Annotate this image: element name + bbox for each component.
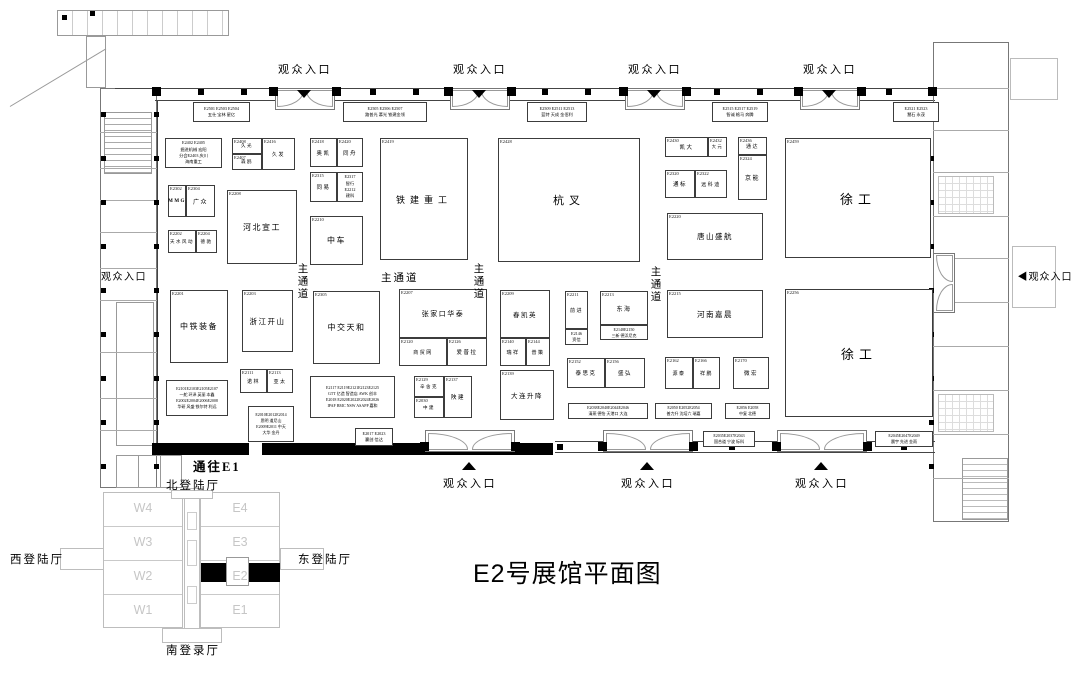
minimap-hall-E4: E4 [200,501,280,515]
minimap-hall-W4: W4 [103,501,183,515]
column-marker [929,464,934,469]
booth-name: 盛弘 [606,359,644,387]
entrance-door [603,430,693,452]
right-corridor-divider [933,88,1009,89]
entrance-label: 观众入口 [265,61,345,77]
column-marker [269,87,278,96]
column-marker [928,87,937,96]
booth-cluster: E2317智行E2212建科 [337,172,363,202]
column-marker [101,244,106,249]
booth-E2304: E2304广众 [186,185,215,217]
right-restroom-block [938,176,994,214]
booth-E2156: E2156盛弘 [605,358,645,388]
entrance-arrow-icon [822,90,836,98]
column-marker [101,332,106,337]
column-marker [154,156,159,161]
booth-name: 京能 [739,156,766,199]
booth-name: 浙江开山 [243,291,292,351]
right-corridor-divider [933,434,1009,435]
booth-name: 微宏 [734,358,768,388]
booth-name: 东海 [601,292,647,324]
door-leaf-icon [824,433,864,449]
booth-E2201: E2201中铁装备 [170,290,228,363]
booth-E2419: E2419铁建重工 [380,138,468,260]
booth-lines: E2146资信 [566,330,587,344]
booth-name: 通达 [739,138,766,154]
booth-name: 源泰 [666,358,692,388]
column-marker [863,442,872,451]
left-long-room [116,302,154,446]
booth-name: 商贸网 [400,339,446,365]
booth-lines: E2509 E2511 E2513蓝特 天成 金佰利 [528,103,586,121]
booth-E2305: E2305中交天和 [313,291,380,364]
booth-name: 春凯英 [501,291,549,337]
corridor-bar-gap [249,443,262,455]
booth-cluster: E2045E2047E2049晨宇 先进 金雨 [875,431,933,447]
booth-name: 大元 [709,138,726,156]
booth-E2210: E2210中车 [310,216,363,265]
column-marker [507,87,516,96]
booth-E2162: E2162源泰 [665,357,693,389]
booth-name: 前进 [566,292,587,328]
left-corridor-divider [100,200,157,201]
column-marker [772,442,781,451]
entrance-label: 观众入口 [430,475,510,491]
column-marker [542,89,548,95]
booth-E2215: E2215河南嘉晨 [667,290,763,338]
main-aisle-label: 主通道 [472,263,484,301]
booth-cluster: E2010E2012E2014思明 道尼山E2009E2011 中天大华 金丹 [248,406,294,442]
booth-cluster: E2038E2040E2044E2046清燕 德怡 天港口 大连 [568,403,648,419]
booth-name: 瑞祥 [501,339,525,365]
booth-cluster: E2050 E2052E2054普力升 沈培六 瑞嘉 [655,403,712,419]
booth-name: 诺林 [241,370,266,392]
right-corridor-divider [933,478,1009,479]
booth-E2137: E2137陕建 [444,376,472,418]
column-marker [444,87,453,96]
left-corridor-divider [100,300,157,301]
booth-name: 广众 [187,186,214,216]
booth-name: 徐工 [786,290,932,416]
booth-E2126: E2126爱普拉 [447,338,487,366]
booth-E2166: E2166祥鹏 [693,357,720,389]
minimap-south-hall-label: 南登录厅 [150,642,236,658]
booth-name: 凯大 [666,138,707,156]
booth-E2324: E2324京能 [738,155,767,200]
booth-E2030: E2030中建 [414,397,444,418]
column-marker [413,89,419,95]
column-marker [370,89,376,95]
door-leaf-icon [936,255,952,282]
column-marker [420,442,429,451]
door-leaf-icon [780,433,820,449]
booth-name: 大连升降 [501,371,553,419]
door-leaf-icon [650,433,690,449]
entrance-label: ◀观众入口 [1008,268,1080,283]
entrance-door [425,430,515,452]
column-marker [585,89,591,95]
booth-name: 杭叉 [499,139,639,261]
column-marker [154,332,159,337]
door-leaf-icon [428,433,468,449]
booth-name: 铁建重工 [381,139,467,259]
right-corridor-divider [933,346,1009,347]
booth-name: 远科迪 [696,171,726,197]
booth-E2302: E2302MMG [168,185,186,217]
booth-cluster: E2146资信 [565,329,588,345]
minimap-west-hall-label: 西登陆厅 [10,551,64,567]
column-marker [101,420,106,425]
booth-cluster: E2521 E2523慧石 永茂 [893,102,939,122]
main-aisle-label: 主通道 [381,270,419,285]
left-stairwell [104,112,152,174]
booth-lines: E2010E2012E2014思明 道尼山E2009E2011 中天大华 金丹 [249,407,293,441]
booth-lines: E2038E2040E2044E2046清燕 德怡 天港口 大连 [569,404,647,418]
entrance-label: 观众入口 [782,475,862,491]
booth-cluster: E2402 E2405掘进机械 宏阳分会E2403 庆川海南重工 [165,138,222,168]
entrance-label: 观众入口 [94,268,154,283]
booth-E2407: E2407森鸥 [232,154,262,170]
booth-name: 中铁装备 [171,291,227,362]
booth-E2213: E2213东海 [600,291,648,325]
booth-lines: E2402 E2405掘进机械 宏阳分会E2403 庆川海南重工 [166,139,221,167]
entrance-door [777,430,867,452]
loading-dock-top [57,10,229,36]
minimap-hall-E3: E3 [200,535,280,549]
booth-E2420: E2420同舟 [337,138,363,167]
right-outer-room [1010,58,1058,100]
minimap-east-hall-label: 东登陆厅 [298,551,352,567]
booth-name: 德驰 [197,231,216,252]
column-marker [557,444,563,450]
booth-cluster: E2509 E2511 E2513蓝特 天成 金佰利 [527,102,587,122]
minimap-hall-W3: W3 [103,535,183,549]
hall-left-edge [157,100,158,443]
to-e1-label: 通往E1 [193,456,241,475]
column-marker [619,87,628,96]
booth-E2120: E2120商贸网 [399,338,447,366]
left-corridor-divider [100,352,157,353]
right-corridor-divider [933,390,1009,391]
booth-name: 普策 [527,339,549,365]
left-corridor-divider [100,132,157,133]
right-bottom-stairwell [962,458,1008,520]
booth-lines: E2017 E2023赢创 信达 [356,429,392,445]
column-marker [101,376,106,381]
entrance-arrow-icon [814,462,828,470]
column-marker [689,442,698,451]
booth-cluster: E2148E2150三新 德浜尼克 [600,325,648,340]
booth-E2111: E2111诺林 [240,369,267,393]
booth-lines: E2148E2150三新 德浜尼克 [601,326,647,339]
left-corridor-divider [100,232,157,233]
booth-name: 祥鹏 [694,358,719,388]
booth-lines: E2317智行E2212建科 [338,173,362,201]
minimap-north-hall-label: 北登陆厅 [153,477,233,493]
right-corridor-divider [933,130,1009,131]
column-marker [154,112,159,117]
booth-E2140: E2140瑞祥 [500,338,526,366]
entrance-label: 观众入口 [440,61,520,77]
column-marker [101,112,106,117]
booth-lines: E2521 E2523慧石 永茂 [894,103,938,121]
entrance-arrow-icon [462,462,476,470]
column-marker [154,376,159,381]
entrance-arrow-icon [297,90,311,98]
minimap-hall-E1: E1 [200,603,280,617]
main-aisle-label: 主通道 [296,263,308,301]
booth-E2436: E2436通达 [738,137,767,155]
booth-E2152: E2152泰思克 [567,358,605,388]
booth-name: 泰思克 [568,359,604,387]
booth-cluster: E2117 E2119E2121E2123E2125GTT 亿造 智造店 AWK… [310,376,395,418]
column-marker [152,87,161,96]
entrance-label: 观众入口 [615,61,695,77]
booth-cluster: E2017 E2023赢创 信达 [355,428,393,446]
booth-E2416: E2416久发 [262,138,295,170]
booth-name: 中交天和 [314,292,379,363]
column-marker [332,87,341,96]
booth-E2459: E2459徐工 [785,138,931,258]
column-marker [154,244,159,249]
column-marker [101,156,106,161]
column-marker [101,288,106,293]
bottom-wall-outer [555,452,935,453]
booth-E2418: E2418奥凯 [310,138,337,167]
column-marker [154,464,159,469]
column-marker [598,442,607,451]
door-leaf-icon [472,433,512,449]
booth-E2430: E2430凯大 [665,137,708,157]
booth-cluster: E2515 E2517 E2519智诚 格马 奔腾 [712,102,768,122]
booth-name: 爱普拉 [448,339,486,365]
booth-E2320: E2320通标 [665,170,695,198]
door-leaf-icon [936,284,952,311]
booth-name: 陕建 [445,377,471,417]
booth-name: 奥凯 [311,139,336,166]
column-marker [682,87,691,96]
booth-E2432: E2432大元 [708,137,727,157]
booth-name: 中建 [415,398,443,417]
left-corridor-divider [100,398,157,399]
booth-lines: E2050 E2052E2054普力升 沈培六 瑞嘉 [656,404,711,418]
column-marker [154,200,159,205]
booth-cluster: E2505 E2506 E2507路普光 慕光 铁建金领 [343,102,427,122]
entrance-arrow-icon [647,90,661,98]
column-marker [90,11,95,16]
column-marker [886,89,892,95]
booth-name: 久发 [263,139,294,169]
booth-name: 森鸥 [233,155,261,169]
minimap-hall-W2: W2 [103,569,183,583]
booth-lines: E2035E2037E2043国合道 宁波 标科 [704,432,754,446]
minimap-corridor-room [187,540,197,566]
booth-lines: E2045E2047E2049晨宇 先进 金雨 [876,432,932,446]
entrance-arrow-icon [640,462,654,470]
booth-name: 唐山盛航 [668,214,762,259]
booth-E2220: E2220唐山盛航 [667,213,763,260]
booth-E2203: E2203浙江开山 [242,290,293,352]
booth-lines: E2515 E2517 E2519智诚 格马 奔腾 [713,103,767,121]
left-corridor-divider [100,168,157,169]
booth-E2204: E2204德驰 [196,230,217,253]
column-marker [757,89,763,95]
booth-lines: E2501 E2503 E2504五仕 宝林 星亿 [194,103,249,121]
booth-lines: E2117 E2119E2121E2123E2125GTT 亿造 智造店 AWK… [311,377,394,417]
booth-E2322: E2322远科迪 [695,170,727,198]
booth-name: 同舟 [338,139,362,166]
column-marker [794,87,803,96]
minimap-south-stub [162,628,222,643]
plan-title: E2号展馆平面图 [473,554,662,590]
booth-E2208: E2208河北宣工 [227,190,297,264]
booth-E2202: E2202天水风动 [168,230,196,253]
booth-name: 辛舍克 [415,377,443,396]
main-aisle-label: 主通道 [649,266,661,304]
column-marker [62,15,67,20]
exhibition-hall-e2-floor-plan: 通往E1 北登陆厅 南登录厅 西登陆厅 东登陆厅 E2号展馆平面图 E2501 … [0,0,1080,676]
column-marker [714,89,720,95]
right-corridor-divider [933,172,1009,173]
entrance-label: 观众入口 [608,475,688,491]
booth-name: 通标 [666,171,694,197]
column-marker [241,89,247,95]
booth-name: 久光 [233,139,261,153]
column-marker [154,288,159,293]
column-marker [857,87,866,96]
booth-E2428: E2428杭叉 [498,138,640,262]
booth-E2139: E2139大连升降 [500,370,554,420]
entrance-arrow-icon [472,90,486,98]
booth-name: 河北宣工 [228,191,296,263]
booth-lines: E2505 E2506 E2507路普光 慕光 铁建金领 [344,103,426,121]
booth-E2315: E2315同易 [310,172,337,202]
booth-cluster: E2101E2103E2105E2107一舵 环泽 英丽 本鑫E2002E200… [166,380,228,416]
entrance-label: 观众入口 [790,61,870,77]
column-marker [198,89,204,95]
booth-cluster: E2056 E2058中复 北德 [725,403,770,419]
booth-name: 中车 [311,217,362,264]
booth-cluster: E2501 E2503 E2504五仕 宝林 星亿 [193,102,250,122]
booth-E2170: E2170微宏 [733,357,769,389]
booth-name: 徐工 [786,139,930,257]
booth-lines: E2056 E2058中复 北德 [726,404,769,418]
booth-name: 同易 [311,173,336,201]
booth-E2129: E2129辛舍克 [414,376,444,397]
booth-cluster: E2035E2037E2043国合道 宁波 标科 [703,431,755,447]
right-corridor-divider [933,216,1009,217]
minimap-hall-W1: W1 [103,603,183,617]
column-marker [101,200,106,205]
minimap-corridor-room [187,586,197,604]
left-corridor-divider [100,430,157,431]
booth-E2211: E2211前进 [565,291,588,329]
column-marker [511,442,520,451]
booth-name: MMG [169,186,185,216]
booth-lines: E2101E2103E2105E2107一舵 环泽 英丽 本鑫E2002E200… [167,381,227,415]
booth-E2256: E2256徐工 [785,289,933,417]
minimap-hall-E2: E2 [200,569,280,583]
booth-E2113: E2113亚太 [267,369,293,393]
minimap-west-stub [60,548,104,570]
entrance-door [933,253,955,313]
door-leaf-icon [606,433,646,449]
booth-E2144: E2144普策 [526,338,550,366]
column-marker [929,420,934,425]
minimap-corridor-room [187,512,197,530]
right-restroom-block [938,394,994,432]
booth-name: 天水风动 [169,231,195,252]
dock-connector [86,36,106,88]
column-marker [154,420,159,425]
booth-E2209: E2209春凯英 [500,290,550,338]
column-marker [101,464,106,469]
booth-name: 河南嘉晨 [668,291,762,337]
booth-E2408: E2408久光 [232,138,262,154]
booth-name: 亚太 [268,370,292,392]
